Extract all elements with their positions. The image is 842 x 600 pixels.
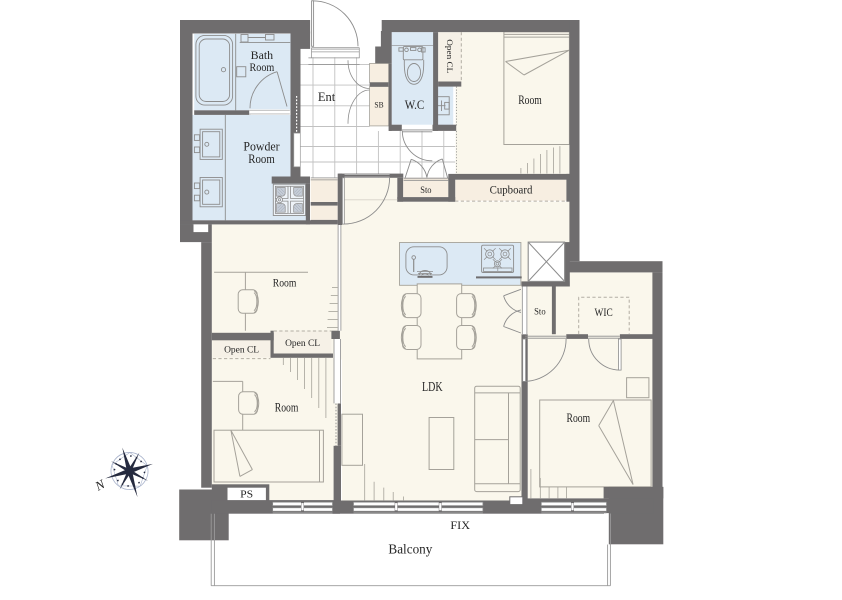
svg-text:Room: Room — [275, 400, 299, 414]
svg-text:Room: Room — [567, 411, 591, 425]
svg-text:Room: Room — [518, 93, 542, 107]
svg-text:Room: Room — [248, 152, 275, 166]
svg-text:Open CL: Open CL — [285, 339, 320, 349]
svg-text:LDK: LDK — [422, 380, 443, 395]
svg-text:WIC: WIC — [595, 307, 613, 319]
svg-text:W.C: W.C — [405, 98, 425, 112]
svg-text:Open CL: Open CL — [445, 39, 455, 73]
svg-text:Sto: Sto — [534, 307, 546, 317]
svg-text:SB: SB — [374, 100, 383, 110]
svg-text:Open CL: Open CL — [224, 346, 259, 356]
svg-text:Cupboard: Cupboard — [490, 183, 533, 197]
svg-text:FIX: FIX — [450, 518, 470, 532]
svg-text:Balcony: Balcony — [388, 543, 432, 558]
svg-text:Ent: Ent — [318, 89, 336, 104]
svg-text:Room: Room — [250, 60, 275, 74]
svg-text:Sto: Sto — [420, 185, 432, 195]
svg-text:Room: Room — [273, 276, 297, 290]
svg-text:PS: PS — [240, 489, 253, 500]
